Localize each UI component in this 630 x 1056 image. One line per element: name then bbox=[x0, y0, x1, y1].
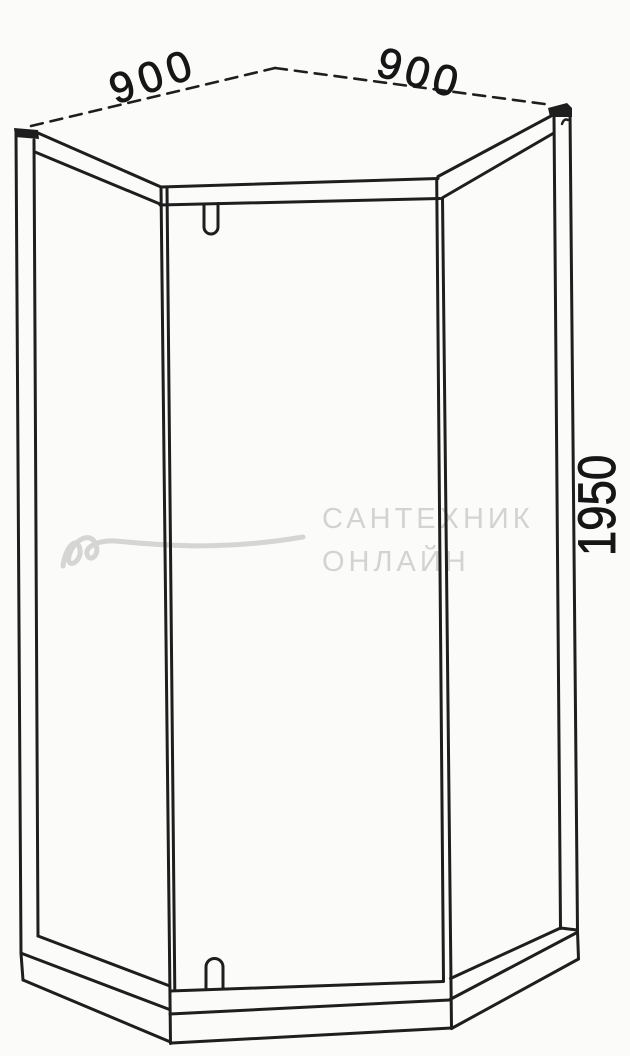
svg-text:1950: 1950 bbox=[568, 455, 627, 556]
svg-text:САНТЕХНИК: САНТЕХНИК bbox=[322, 503, 534, 535]
